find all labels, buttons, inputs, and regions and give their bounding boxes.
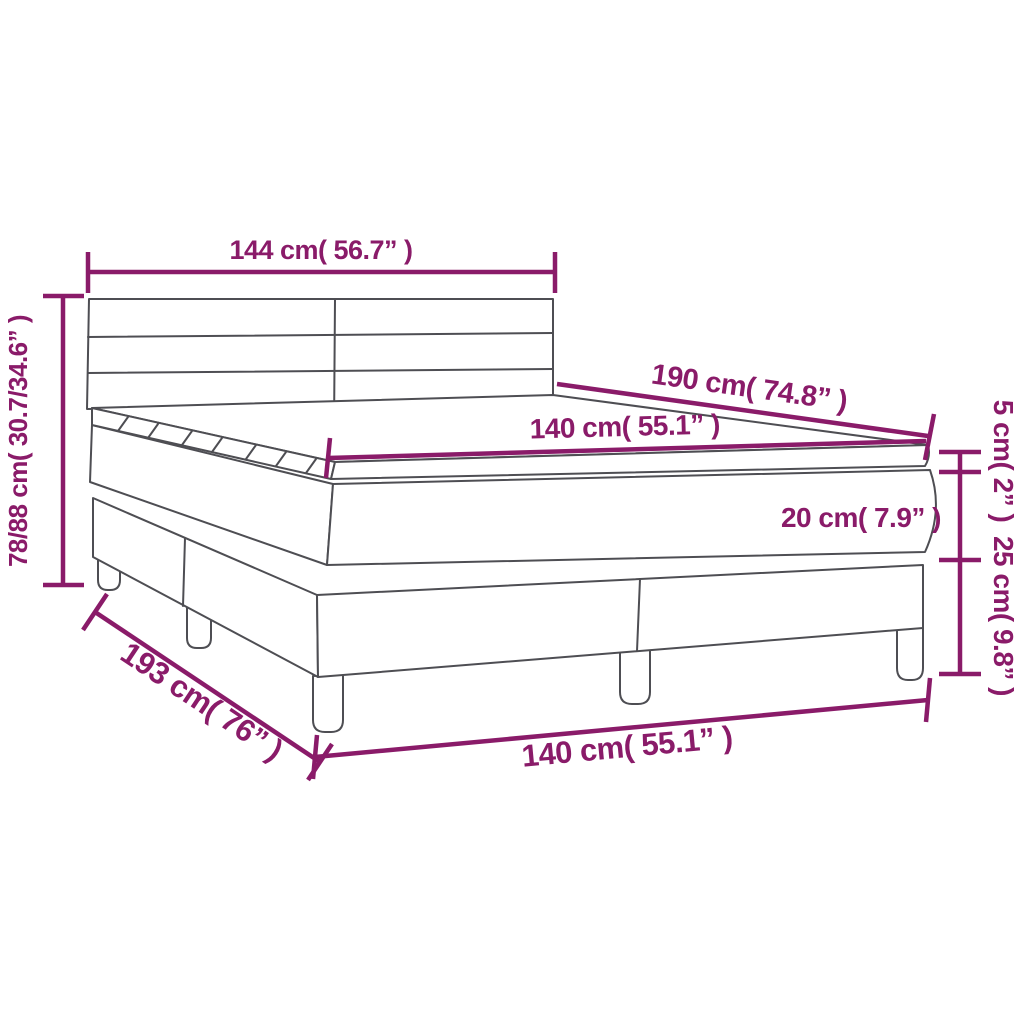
bed-leg xyxy=(313,674,343,732)
dim-label-mattress-width: 140 cm( 55.1” ) xyxy=(529,409,720,445)
dim-label-mattress-thickness: 20 cm( 7.9” ) xyxy=(781,502,941,533)
dim-label-base-height: 25 cm( 9.8” ) xyxy=(988,536,1019,696)
dim-bed-height: 78/88 cm( 30.7/34.6” ) xyxy=(3,296,84,585)
dim-headboard-width: 144 cm( 56.7” ) xyxy=(88,235,555,293)
bed-dimension-diagram: 144 cm( 56.7” ) 78/88 cm( 30.7/34.6” ) 1… xyxy=(0,0,1024,1024)
bed-leg xyxy=(620,649,650,704)
dim-label-bed-height: 78/88 cm( 30.7/34.6” ) xyxy=(3,315,33,567)
dim-label-topper-thickness: 5 cm( 2” ) xyxy=(988,400,1019,523)
dim-label-bed-length: 193 cm( 76” ) xyxy=(115,635,290,768)
diagram-canvas: 144 cm( 56.7” ) 78/88 cm( 30.7/34.6” ) 1… xyxy=(0,0,1024,1024)
bed-leg xyxy=(897,626,923,680)
dim-label-headboard-width: 144 cm( 56.7” ) xyxy=(229,235,412,265)
